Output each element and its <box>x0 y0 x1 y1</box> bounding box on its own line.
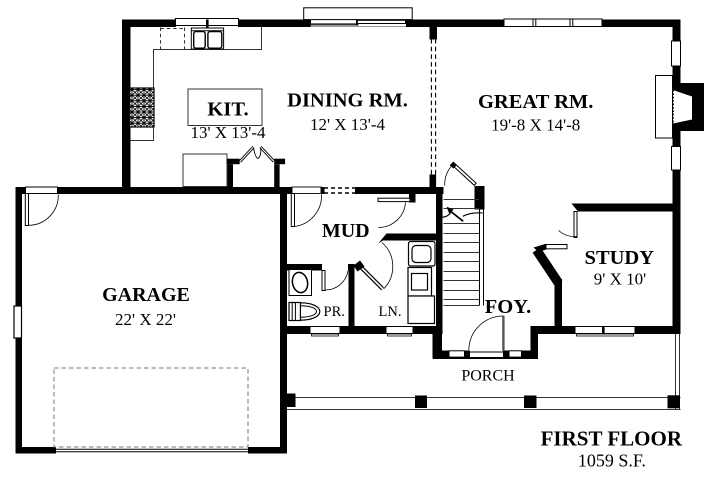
svg-text:DINING RM.: DINING RM. <box>287 90 408 112</box>
svg-text:KIT.: KIT. <box>207 99 248 121</box>
svg-text:STUDY: STUDY <box>585 247 655 269</box>
svg-text:22' X 22': 22' X 22' <box>115 310 176 329</box>
svg-text:LN.: LN. <box>379 304 402 320</box>
svg-text:FIRST FLOOR: FIRST FLOOR <box>541 427 683 451</box>
svg-text:MUD: MUD <box>322 220 370 242</box>
svg-text:GARAGE: GARAGE <box>102 284 190 306</box>
svg-text:1059 S.F.: 1059 S.F. <box>578 451 646 471</box>
svg-text:13' X 13'-4: 13' X 13'-4 <box>190 123 266 142</box>
svg-text:GREAT RM.: GREAT RM. <box>478 91 593 113</box>
svg-text:PR.: PR. <box>324 304 345 320</box>
svg-text:FOY.: FOY. <box>485 296 532 318</box>
svg-text:19'-8 X 14'-8: 19'-8 X 14'-8 <box>491 116 580 135</box>
svg-text:12' X 13'-4: 12' X 13'-4 <box>310 115 386 134</box>
svg-text:PORCH: PORCH <box>461 368 515 385</box>
svg-text:9' X 10': 9' X 10' <box>594 270 646 289</box>
